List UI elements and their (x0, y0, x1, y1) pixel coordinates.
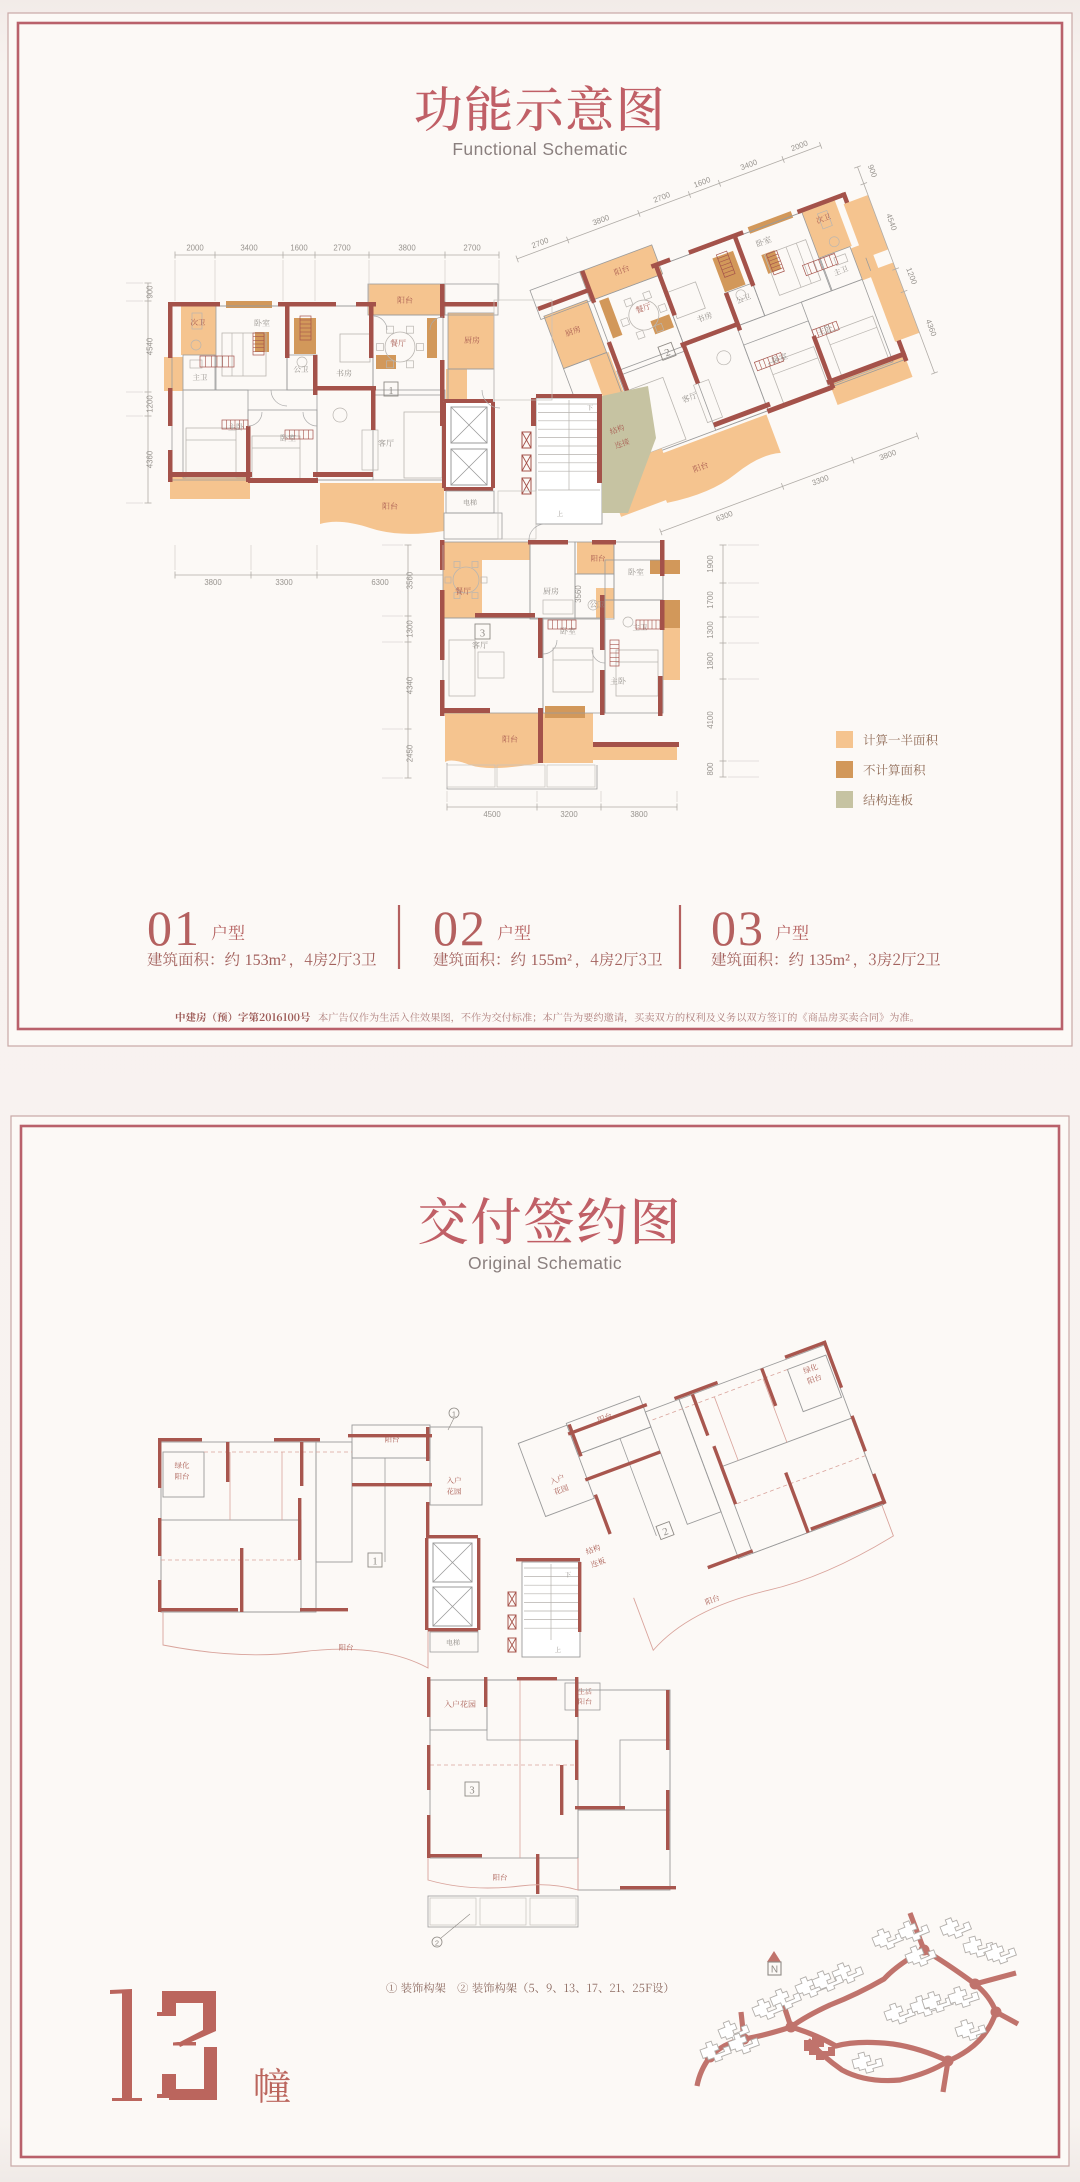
svg-text:1700: 1700 (706, 591, 715, 609)
svg-text:3200: 3200 (560, 810, 578, 819)
svg-text:3: 3 (469, 1786, 474, 1797)
svg-text:Original Schematic: Original Schematic (468, 1253, 622, 1273)
svg-text:800: 800 (706, 762, 715, 776)
svg-text:4540: 4540 (146, 337, 155, 355)
svg-text:1300: 1300 (706, 621, 715, 639)
svg-text:2: 2 (435, 1939, 439, 1948)
svg-text:4340: 4340 (406, 676, 415, 694)
svg-text:01: 01 (147, 900, 201, 956)
svg-text:3800: 3800 (398, 244, 416, 253)
svg-text:1300: 1300 (406, 620, 415, 638)
svg-text:900: 900 (146, 285, 155, 299)
svg-text:1600: 1600 (290, 244, 308, 253)
svg-text:3560: 3560 (406, 571, 415, 589)
svg-text:1200: 1200 (146, 395, 155, 413)
svg-text:3800: 3800 (204, 578, 222, 587)
svg-text:3560: 3560 (574, 585, 583, 603)
svg-text:4500: 4500 (483, 810, 501, 819)
svg-text:2000: 2000 (186, 244, 204, 253)
svg-text:155m²: 155m² (531, 952, 572, 969)
svg-text:4360: 4360 (146, 450, 155, 468)
svg-text:03: 03 (711, 900, 765, 956)
svg-text:1: 1 (452, 1410, 456, 1419)
svg-text:2700: 2700 (463, 244, 481, 253)
svg-text:2450: 2450 (406, 744, 415, 762)
svg-text:135m²: 135m² (809, 952, 850, 969)
svg-text:3: 3 (480, 629, 485, 640)
svg-text:3300: 3300 (275, 578, 293, 587)
svg-text:N: N (771, 1965, 778, 1976)
svg-text:1800: 1800 (706, 652, 715, 670)
svg-text:3400: 3400 (240, 244, 258, 253)
svg-text:3800: 3800 (630, 810, 648, 819)
svg-text:Functional Schematic: Functional Schematic (452, 139, 627, 159)
svg-text:1: 1 (388, 386, 393, 397)
svg-text:2700: 2700 (333, 244, 351, 253)
svg-text:1900: 1900 (706, 555, 715, 573)
svg-text:1: 1 (372, 1557, 377, 1568)
svg-text:4100: 4100 (706, 711, 715, 729)
svg-text:02: 02 (433, 900, 487, 956)
svg-text:6300: 6300 (371, 578, 389, 587)
svg-text:153m²: 153m² (245, 952, 286, 969)
